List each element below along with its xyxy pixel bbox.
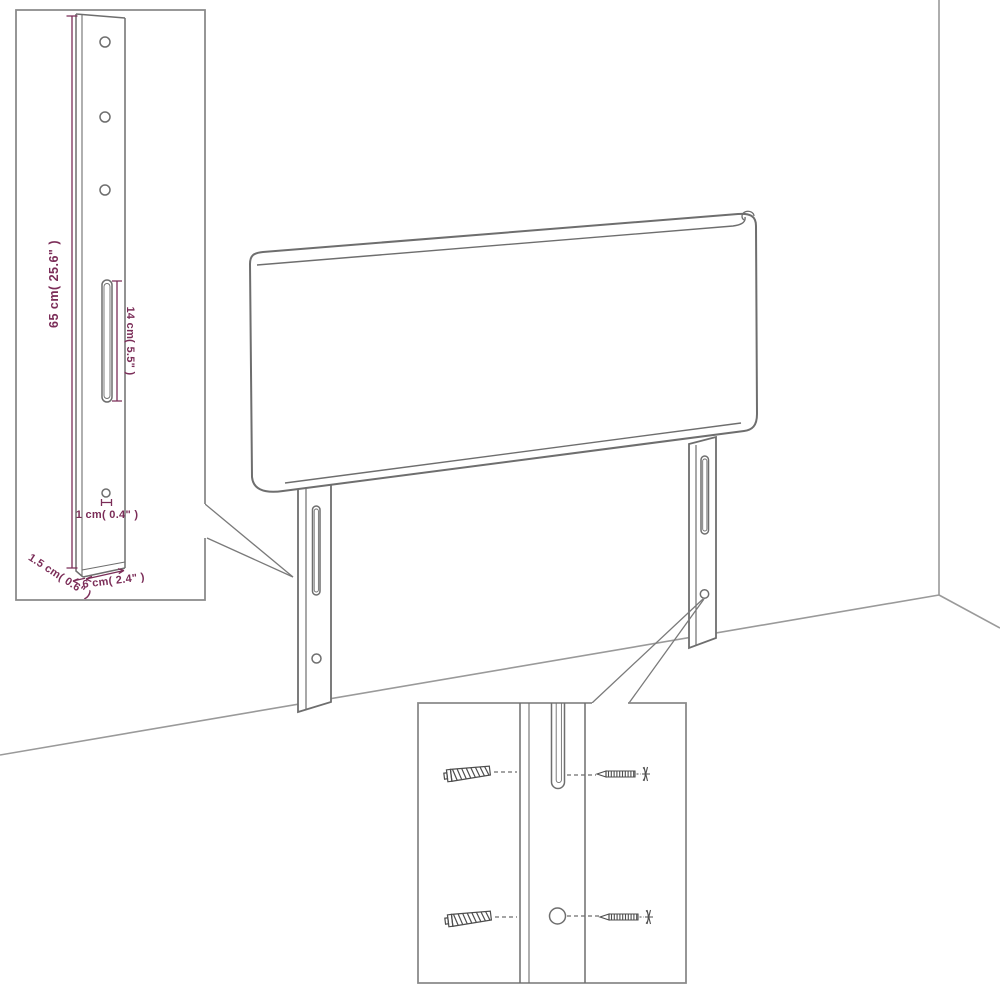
headboard-assembly-diagram: 65 cm( 25.6" ) 14 cm( 5.5" ) 1 cm( 0.4" … (0, 0, 1000, 1000)
left-leg-hole (312, 654, 321, 663)
right-leg-slot-inner (703, 459, 707, 531)
headboard-outline (250, 214, 757, 492)
left-leg (298, 465, 331, 712)
headboard-panel (250, 211, 757, 491)
right-leg (689, 437, 716, 648)
callout-line-lower (207, 538, 293, 577)
dimension-label-slot: 14 cm( 5.5" ) (124, 306, 136, 375)
dimension-label-height: 65 cm( 25.6" ) (47, 240, 61, 328)
dimension-label-hole: 1 cm( 0.4" ) (76, 509, 139, 521)
bracket-detail-inset: 65 cm( 25.6" ) 14 cm( 5.5" ) 1 cm( 0.4" … (16, 10, 205, 601)
callout-line-upper (205, 504, 293, 577)
callout-bracket-inset (205, 504, 293, 577)
screw-detail-inset (418, 703, 686, 983)
left-leg-slot-inner (314, 509, 318, 592)
callout-line-right (629, 599, 704, 703)
right-leg-hole (700, 590, 708, 598)
floor-wall-line-right (939, 595, 1000, 628)
product-diagram-page: 65 cm( 25.6" ) 14 cm( 5.5" ) 1 cm( 0.4" … (0, 0, 1000, 1000)
